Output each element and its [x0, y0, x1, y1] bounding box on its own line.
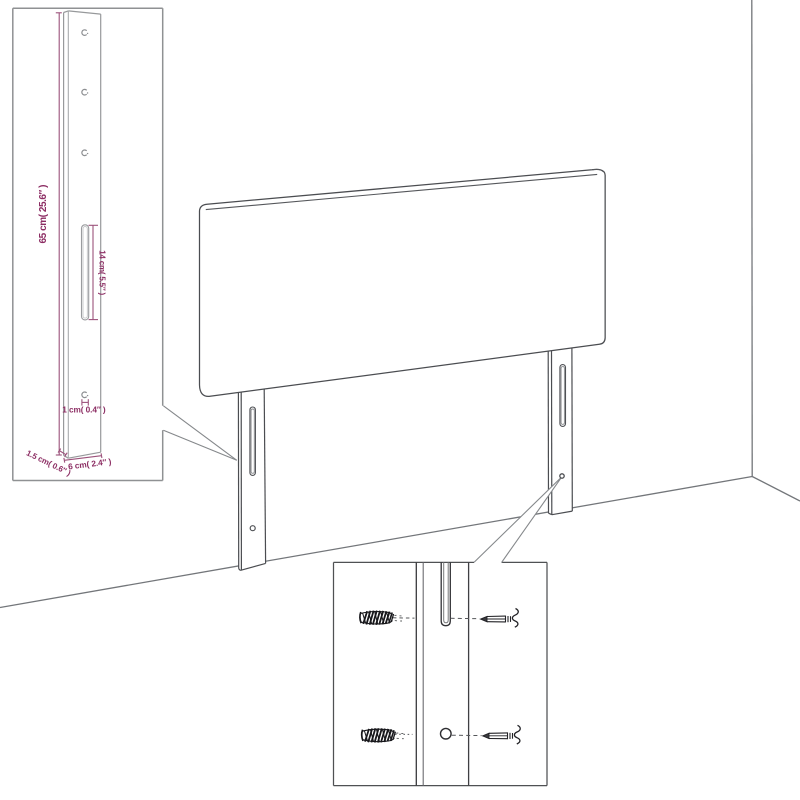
svg-text:65 cm( 25.6″ ): 65 cm( 25.6″ )	[38, 185, 49, 244]
svg-text:1 cm( 0.4″ ): 1 cm( 0.4″ )	[62, 405, 106, 415]
svg-text:14 cm( 5.5″ ): 14 cm( 5.5″ )	[98, 250, 107, 295]
